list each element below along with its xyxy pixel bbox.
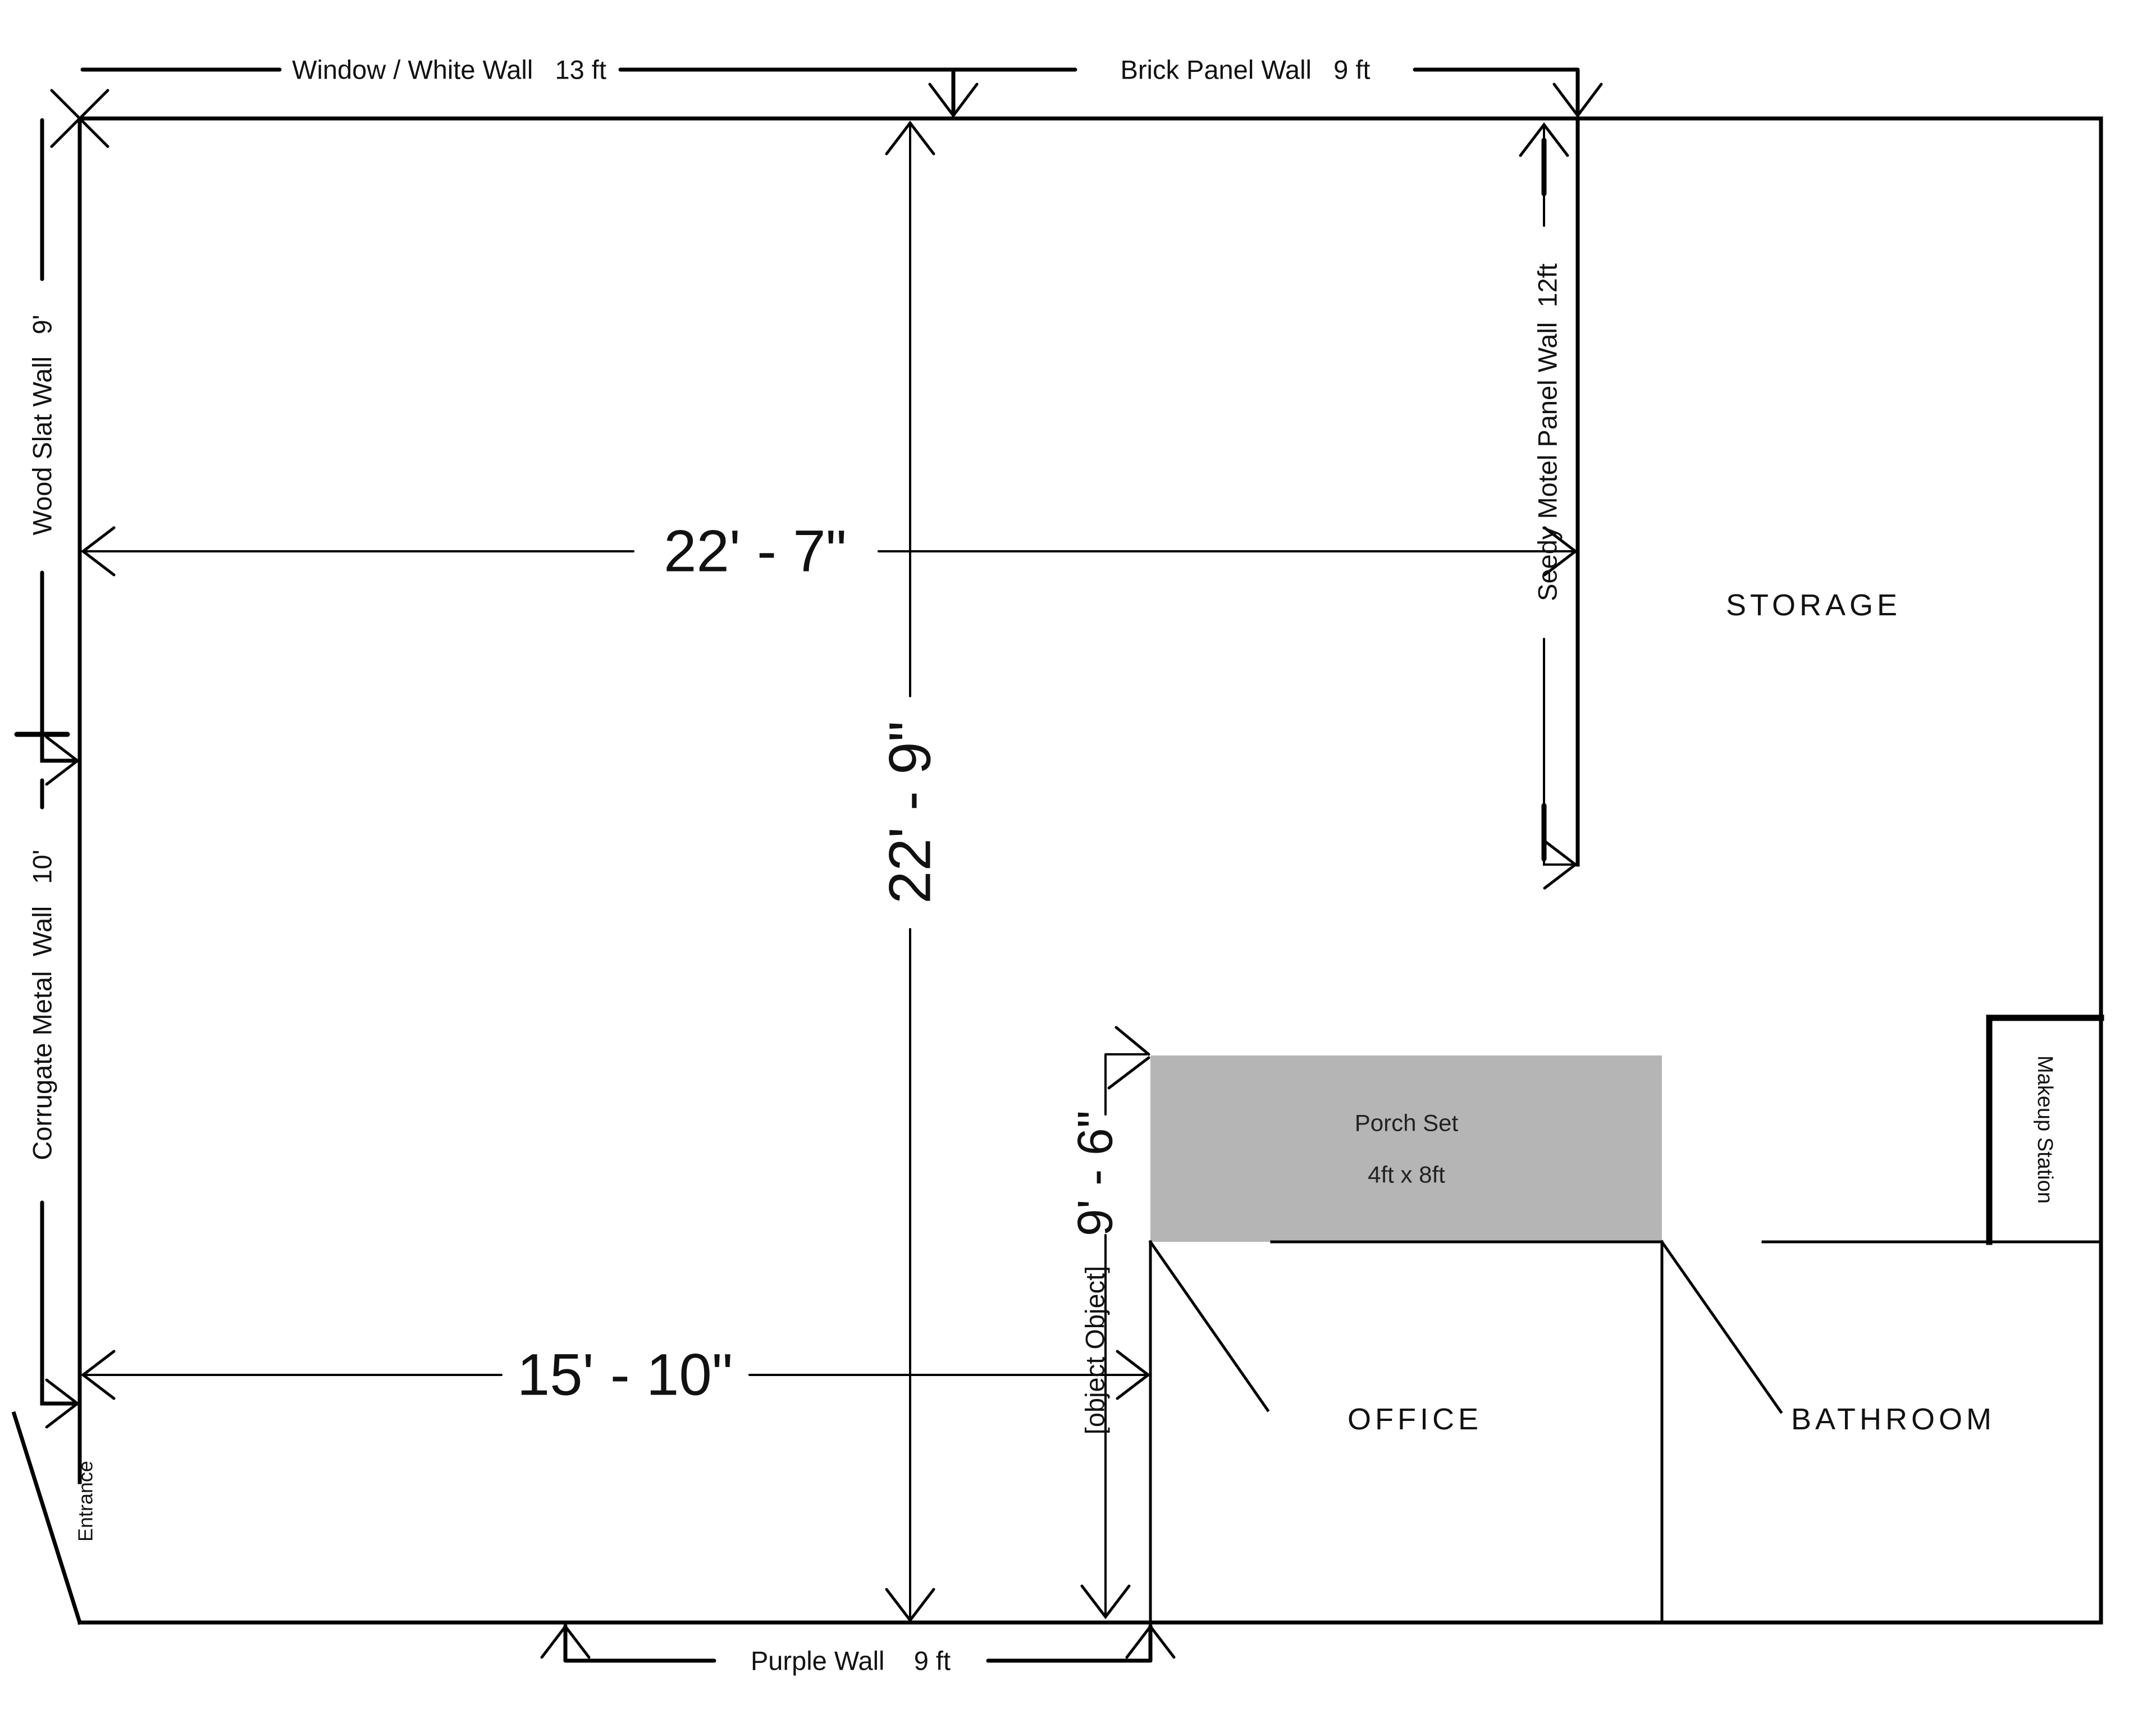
height-center-dim-text: 22' - 9" — [878, 721, 943, 904]
entrance-door-swing — [14, 1414, 80, 1622]
bathroom-room-label: BATHROOM — [1791, 1402, 1995, 1436]
entrance-label: Entrance — [74, 1461, 97, 1542]
width-upper-dim-text: 22' - 7" — [664, 519, 847, 584]
gray-wall-dim-corner-arrow — [1109, 1027, 1149, 1088]
brick-panel-wall-label: Brick Panel Wall 9 ft — [1121, 55, 1371, 85]
storage-room-label: STORAGE — [1726, 588, 1901, 622]
seedy-motel-wall-label: Seedy Motel Panel Wall 12ft — [1533, 263, 1563, 601]
wood-slat-wall-label: Wood Slat Wall 9' — [28, 315, 57, 536]
office-room-label: OFFICE — [1347, 1402, 1482, 1436]
floor-plan-svg: Window / White Wall 13 ft Brick Panel Wa… — [0, 0, 2156, 1714]
porch-set-area — [1150, 1055, 1662, 1242]
porch-set-label-line2: 4ft x 8ft — [1368, 1162, 1445, 1188]
bathroom-door-swing — [1662, 1242, 1781, 1412]
purple-wall-label: Purple Wall 9 ft — [751, 1646, 951, 1676]
gray-wall-dim-text: 9' - 6" — [1067, 1110, 1123, 1236]
width-lower-dim-text: 15' - 10" — [517, 1342, 733, 1408]
gray-wall-label: [object Object] — [1080, 1266, 1110, 1434]
makeup-station-label: Makeup Station — [2033, 1055, 2057, 1204]
office-door-swing — [1150, 1242, 1268, 1410]
window-white-wall-label: Window / White Wall 13 ft — [292, 55, 606, 85]
floor-plan-page: { "walls": { "window_white": {"label": "… — [0, 0, 2156, 1714]
corrugate-metal-wall-label: Corrugate Metal Wall 10' — [28, 849, 57, 1160]
porch-set-label-line1: Porch Set — [1355, 1110, 1459, 1136]
left-dimension-line — [42, 120, 73, 1404]
